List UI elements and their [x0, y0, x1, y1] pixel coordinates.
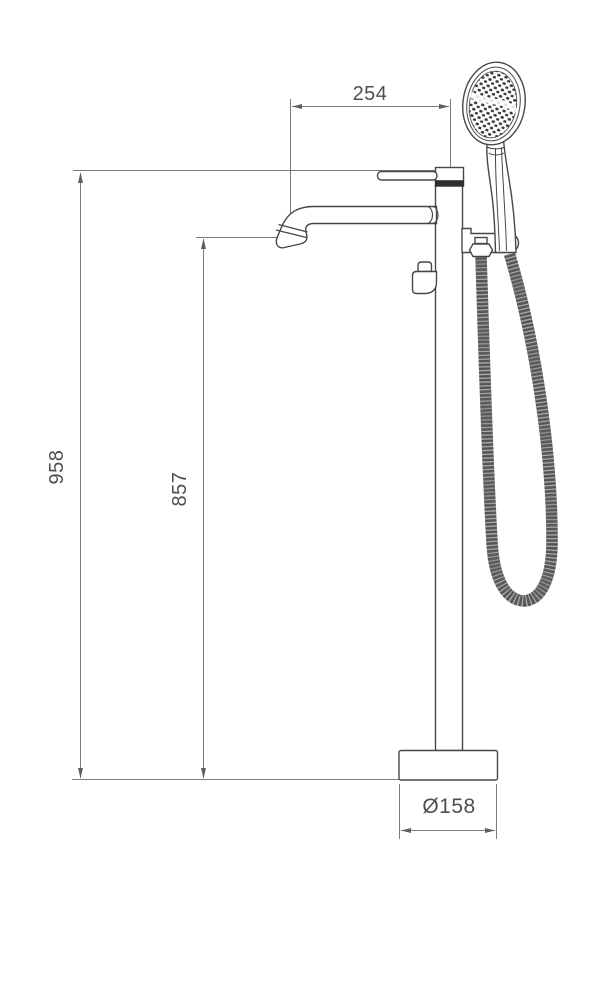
faucet-assembly [276, 58, 530, 780]
arrow-icon [78, 173, 83, 184]
hose-connector-nut [470, 244, 493, 257]
swivel-spout [276, 207, 436, 248]
arrow-icon [485, 828, 495, 833]
arrow-icon [78, 768, 83, 779]
arrow-icon [439, 104, 449, 109]
floor-base-plate [399, 751, 498, 781]
dimension-label-base-diameter: Ø158 [422, 795, 475, 818]
flexible-shower-hose [481, 254, 552, 601]
mixer-lever-handle [378, 172, 438, 181]
arrow-icon [201, 239, 206, 250]
diverter-knob-tab [418, 262, 432, 272]
technical-drawing-page: 254 958 857 Ø158 [0, 0, 605, 1000]
arrow-icon [292, 104, 302, 109]
dimension-label-spout-reach: 254 [353, 83, 388, 105]
dimension-label-spout-height: 857 [169, 472, 191, 507]
column-riser [436, 186, 463, 751]
hose-nut-collar [475, 238, 487, 244]
faucet-dimension-drawing: 254 958 857 Ø158 [0, 0, 605, 1000]
cartridge-cap [436, 168, 464, 182]
arrow-icon [201, 768, 206, 779]
cap-dark-ring [436, 181, 464, 186]
diverter-knob [413, 272, 437, 294]
arrow-icon [401, 828, 411, 833]
dimension-label-overall-height: 958 [46, 450, 68, 485]
